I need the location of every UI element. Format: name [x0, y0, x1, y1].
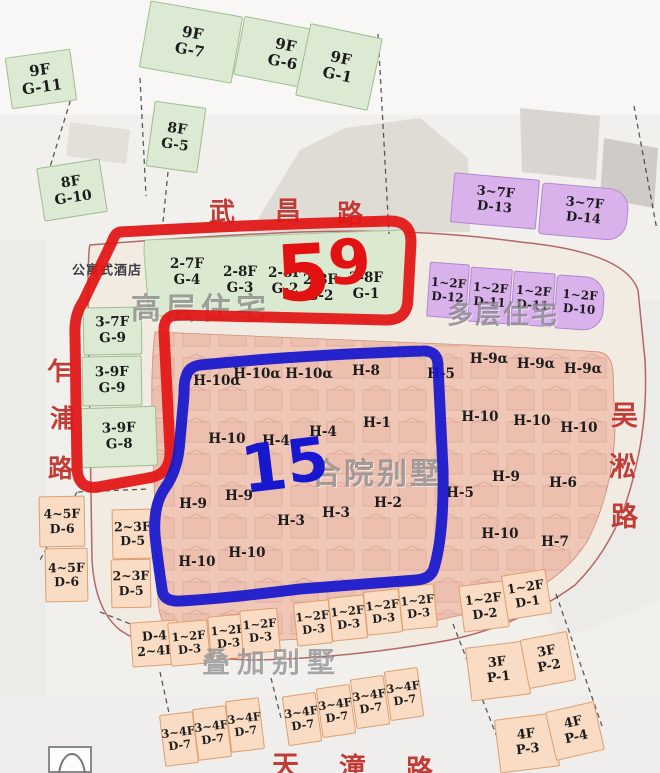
- road-label-tiantong: 天: [272, 744, 299, 773]
- road-label-wuchang: 武: [209, 192, 235, 229]
- road-label-zhapu: 浦: [50, 399, 75, 435]
- road-label-zhapu: 路: [48, 449, 73, 485]
- road-labels: 武昌路乍浦路吴淞路天潼路: [0, 0, 660, 773]
- road-label-wuchang: 昌: [275, 191, 301, 228]
- site-plan-map: 9FG-119FG-79FG-69FG-18FG-58FG-103-7FG-93…: [0, 0, 660, 773]
- road-label-wusong: 吴: [611, 394, 638, 433]
- road-label-wusong: 路: [611, 495, 638, 534]
- road-label-zhapu: 乍: [47, 352, 72, 388]
- road-label-wuchang: 路: [337, 194, 363, 231]
- road-label-tiantong: 路: [406, 748, 433, 773]
- road-label-wusong: 淞: [609, 445, 636, 484]
- road-label-tiantong: 潼: [339, 746, 366, 773]
